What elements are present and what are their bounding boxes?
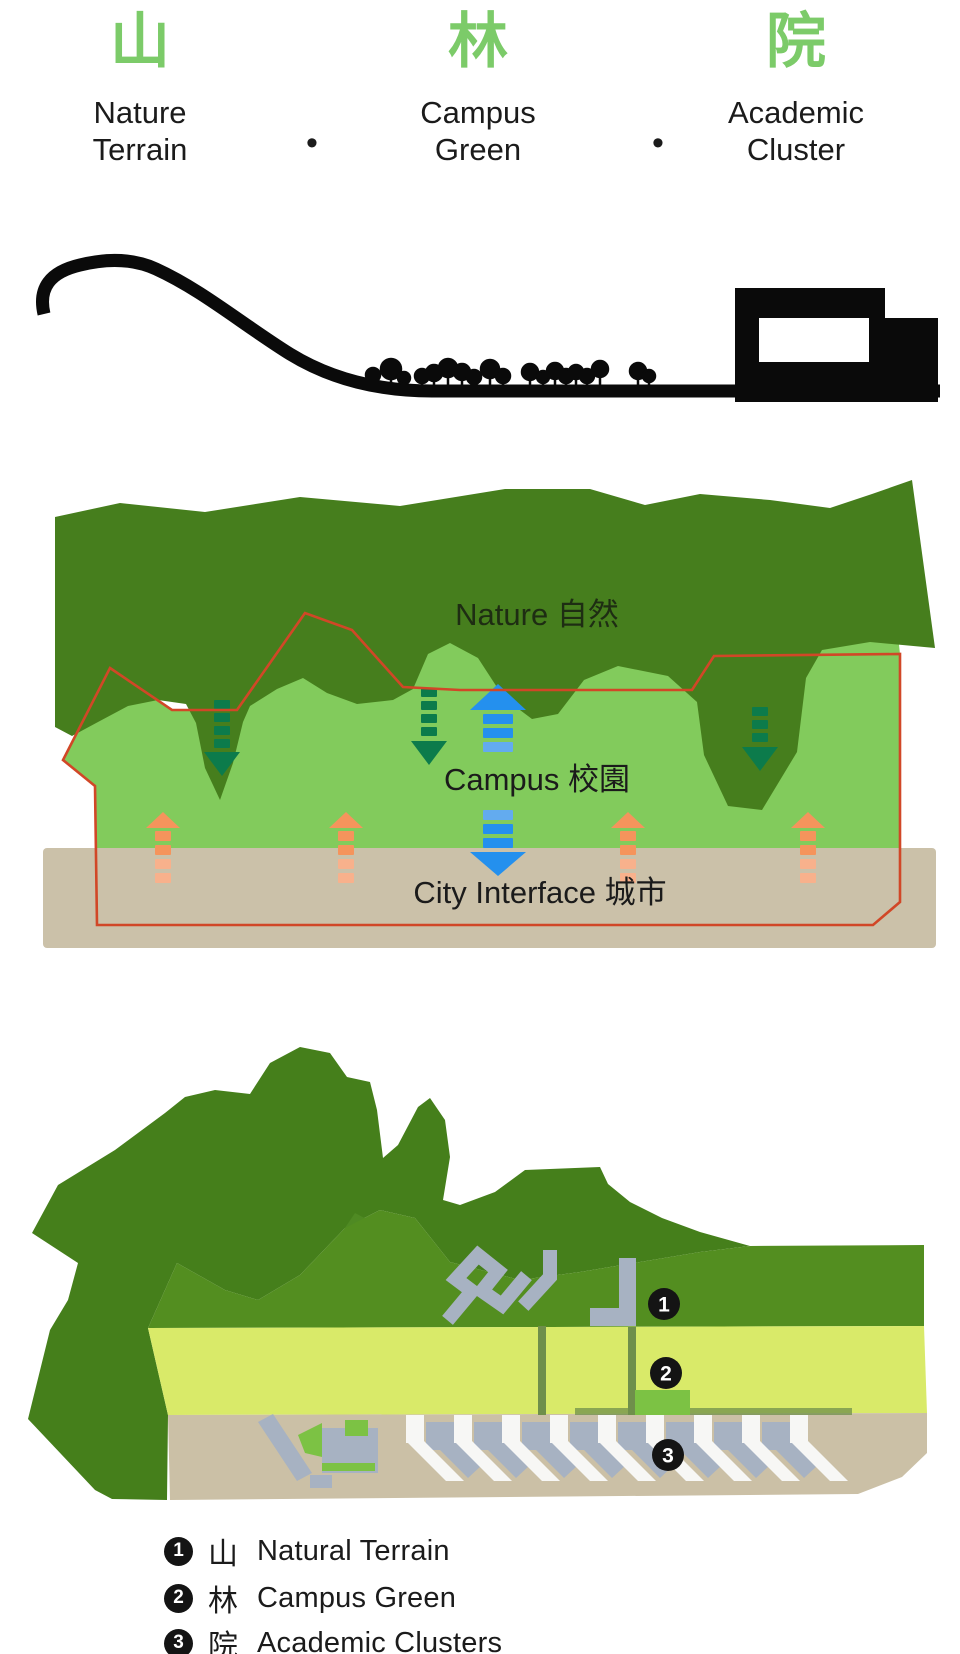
city-zone-label: City Interface 城市: [413, 875, 666, 910]
legend-badge-3: 3: [164, 1629, 193, 1654]
legend-char-3: 院: [208, 1621, 238, 1654]
header-char-mountain: 山: [110, 10, 170, 74]
band-edge-strip: [575, 1408, 852, 1415]
separator-dot: •: [652, 124, 664, 163]
campus-path: [538, 1326, 546, 1415]
campus-zone-label: Campus 校園: [444, 762, 630, 797]
svg-text:2: 2: [660, 1363, 672, 1386]
legend-row-campus-green: 2 林 Campus Green: [164, 1576, 456, 1620]
legend-row-natural-terrain: 1 山 Natural Terrain: [164, 1529, 450, 1573]
header-label-academic-cluster: AcademicCluster: [728, 94, 864, 168]
marker-3: 3: [652, 1439, 684, 1471]
campus-band: [148, 1326, 927, 1415]
nature-zone-label: Nature 自然: [455, 597, 619, 632]
green-terrace: [635, 1390, 690, 1415]
legend-badge-2: 2: [164, 1584, 193, 1613]
legend-char-2: 林: [208, 1576, 238, 1620]
campus-path: [628, 1327, 636, 1415]
legend-badge-1: 1: [164, 1537, 193, 1566]
building-silhouette: [735, 288, 938, 402]
legend-char-1: 山: [208, 1529, 238, 1573]
svg-text:1: 1: [658, 1294, 670, 1317]
zone-diagram: Nature 自然 Campus 校園 City Interface 城市: [0, 460, 960, 960]
legend-label-1: Natural Terrain: [257, 1535, 450, 1568]
separator-dot: •: [306, 124, 318, 163]
header-label-campus-green: CampusGreen: [420, 94, 535, 168]
concept-diagram-page: 山 林 院 NatureTerrain • CampusGreen • Acad…: [0, 0, 960, 1654]
marker-1: 1: [648, 1288, 680, 1320]
header-char-forest: 林: [448, 10, 508, 74]
header-label-nature-terrain: NatureTerrain: [93, 94, 188, 168]
legend-label-2: Campus Green: [257, 1582, 456, 1615]
svg-text:3: 3: [662, 1445, 674, 1468]
legend-label-3: Academic Clusters: [257, 1627, 502, 1654]
marker-2: 2: [650, 1357, 682, 1389]
section-diagram: [0, 250, 960, 415]
building-window: [759, 318, 869, 362]
legend-row-academic-clusters: 3 院 Academic Clusters: [164, 1621, 502, 1654]
site-plan: 1 2 3: [0, 985, 960, 1515]
header-char-academy: 院: [766, 10, 826, 74]
